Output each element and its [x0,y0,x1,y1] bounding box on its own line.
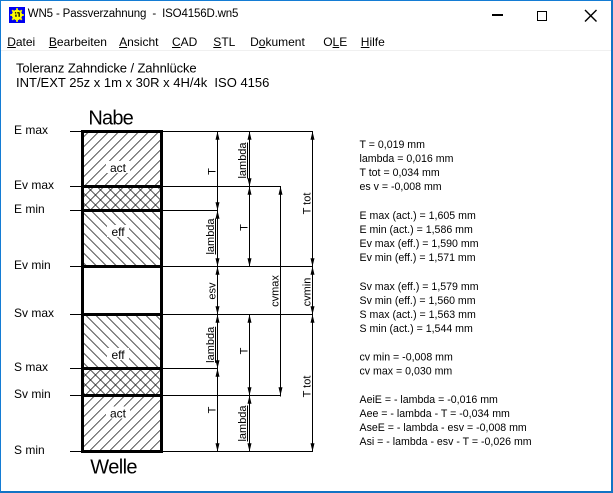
svg-text:cvmax: cvmax [270,275,282,307]
svg-text:Aee = - lambda - T = -0,034 mm: Aee = - lambda - T = -0,034 mm [360,408,511,420]
svg-text:Ev min: Ev min [14,258,51,272]
svg-text:E max: E max [14,123,48,137]
svg-text:Ev min (eff.) = 1,571 mm: Ev min (eff.) = 1,571 mm [360,252,476,264]
svg-text:E min (act.) = 1,586 mm: E min (act.) = 1,586 mm [360,224,474,236]
svg-text:act: act [110,407,127,421]
svg-text:S max: S max [14,360,48,374]
svg-text:Ev max (eff.) = 1,590 mm: Ev max (eff.) = 1,590 mm [360,238,479,250]
svg-text:es v = -0,008 mm: es v = -0,008 mm [360,181,442,193]
svg-text:AseE = - lambda - esv = -0,008: AseE = - lambda - esv = -0,008 mm [360,422,527,434]
svg-text:E min: E min [14,202,45,216]
svg-text:eff: eff [111,225,125,239]
svg-text:T: T [207,406,219,413]
svg-text:S min (act.) = 1,544 mm: S min (act.) = 1,544 mm [360,323,474,335]
svg-text:Asi = - lambda - esv - T = -0,: Asi = - lambda - esv - T = -0,026 mm [360,436,532,448]
svg-text:T tot: T tot [301,193,313,215]
svg-text:Welle: Welle [90,457,137,479]
svg-text:Toleranz Zahndicke / Zahnlücke: Toleranz Zahndicke / Zahnlücke [16,61,197,76]
svg-text:lambda = 0,016 mm: lambda = 0,016 mm [360,153,454,165]
svg-text:T tot: T tot [301,376,313,398]
svg-text:AeiE = - lambda = -0,016 mm: AeiE = - lambda = -0,016 mm [360,394,499,406]
svg-text:T: T [239,224,251,231]
svg-text:cv max = 0,030 mm: cv max = 0,030 mm [360,366,453,378]
svg-text:Sv max (eff.) = 1,579 mm: Sv max (eff.) = 1,579 mm [360,281,479,293]
svg-text:S max (act.) = 1,563 mm: S max (act.) = 1,563 mm [360,309,476,321]
svg-text:T tot = 0,034 mm: T tot = 0,034 mm [360,167,440,179]
svg-text:T = 0,019 mm: T = 0,019 mm [360,139,426,151]
svg-text:Sv min: Sv min [14,387,51,401]
svg-text:act: act [110,161,127,175]
svg-text:Ev max: Ev max [14,178,54,192]
svg-text:cv min = -0,008 mm: cv min = -0,008 mm [360,352,453,364]
svg-text:cvmin: cvmin [301,278,313,307]
svg-text:eff: eff [111,348,125,362]
svg-text:Sv min (eff.) = 1,560 mm: Sv min (eff.) = 1,560 mm [360,295,476,307]
svg-text:INT/EXT 25z x 1m x 30R x 4H/4k: INT/EXT 25z x 1m x 30R x 4H/4k ISO 4156 [16,75,269,90]
svg-text:E max (act.) = 1,605 mm: E max (act.) = 1,605 mm [360,210,476,222]
svg-text:S min: S min [14,443,45,457]
svg-text:T: T [239,347,251,354]
svg-text:esv: esv [207,282,219,300]
svg-text:Sv max: Sv max [14,306,54,320]
svg-text:Nabe: Nabe [88,108,133,130]
svg-text:T: T [207,168,219,175]
